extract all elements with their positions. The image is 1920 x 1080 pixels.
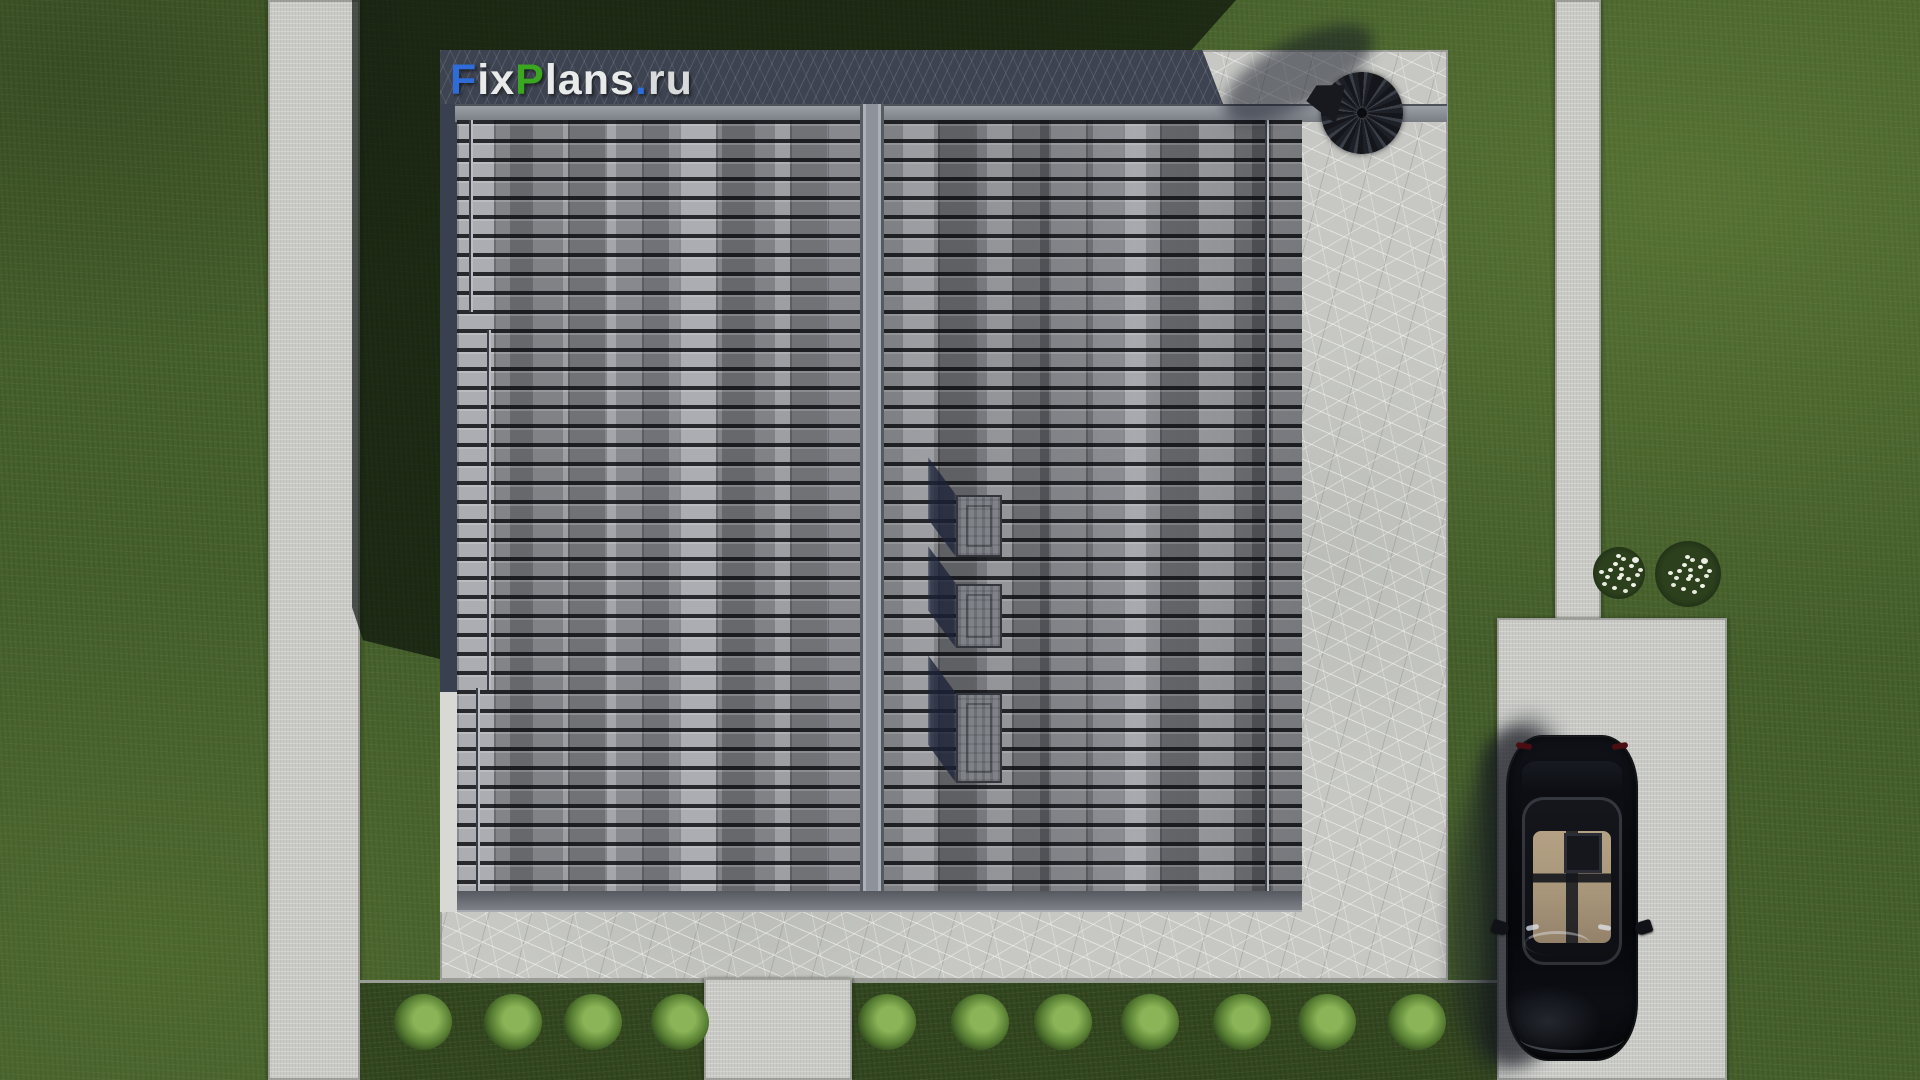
logo-segment: P <box>515 56 545 104</box>
logo-segment: ru <box>648 56 693 104</box>
garden-path-right <box>1555 0 1601 620</box>
roof-vent-3 <box>956 693 1002 783</box>
flower-blossoms <box>1619 573 1624 577</box>
logo-segment: ix <box>477 56 515 104</box>
aerial-render-canvas: FixPlans.ru <box>0 0 1920 1080</box>
hedge-bush <box>394 994 452 1050</box>
car-rear-glass <box>1522 761 1622 795</box>
hedge-bush <box>484 994 542 1050</box>
car-black-sedan <box>1506 735 1638 1061</box>
hedge-bush <box>858 994 916 1050</box>
hedge-bush <box>1388 994 1446 1050</box>
car-hood-glint <box>1520 1024 1624 1053</box>
fixplans-watermark: FixPlans.ru <box>450 56 693 105</box>
logo-segment: F <box>450 56 477 104</box>
car-taillight-left <box>1516 742 1533 750</box>
flower-bush <box>1593 547 1645 599</box>
car-taillight-right <box>1612 742 1629 750</box>
walkway-bottom <box>704 978 852 1080</box>
car-windshield-glint <box>1524 931 1590 956</box>
roof-vent-1 <box>956 495 1002 557</box>
flower-blossoms <box>1688 574 1693 578</box>
hedge-bush <box>951 994 1009 1050</box>
roof-seam-2 <box>487 330 491 690</box>
logo-segment: . <box>635 56 648 104</box>
hedge-bush <box>1298 994 1356 1050</box>
garden-path-left <box>268 0 360 1080</box>
logo-segment: lans <box>545 56 635 104</box>
house-shadow-on-grass-left <box>352 0 444 660</box>
roof-seam-right <box>1265 120 1269 891</box>
hedge-bush <box>651 994 709 1050</box>
flower-bush <box>1655 541 1721 607</box>
roof-seam-3 <box>476 688 480 893</box>
left-wall-strip-shadow <box>440 104 457 692</box>
car-sunroof <box>1564 833 1602 873</box>
hedge-bush <box>1034 994 1092 1050</box>
roof-bottom-fascia <box>457 891 1302 912</box>
hedge-bush <box>1213 994 1271 1050</box>
roof-seam-1 <box>469 120 473 312</box>
roof-ridge-cap <box>860 104 884 912</box>
house-shadow-on-grass-top <box>444 0 1244 54</box>
roof-vent-2 <box>956 584 1002 648</box>
hedge-bush <box>1121 994 1179 1050</box>
hedge-bush <box>564 994 622 1050</box>
